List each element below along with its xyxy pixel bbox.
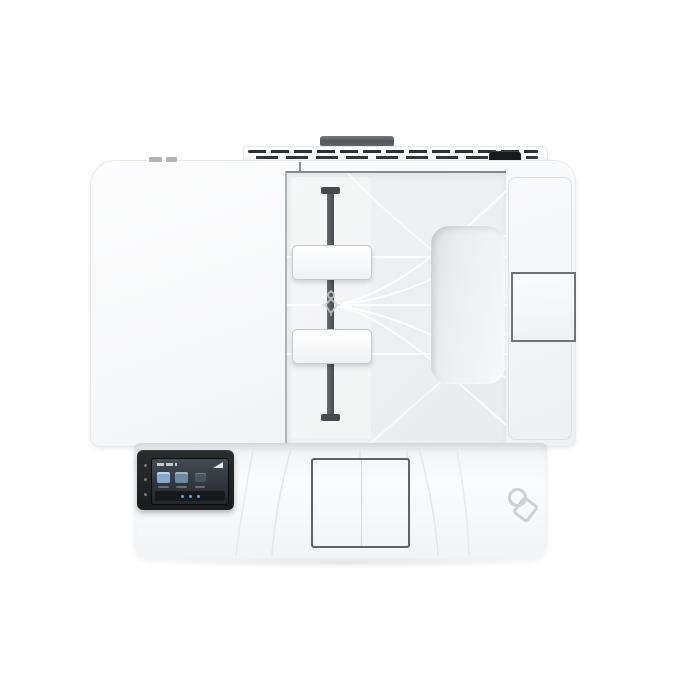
app-icon-caption: [176, 486, 187, 488]
guide-rail-end-cap: [321, 414, 340, 421]
screen-nav-bar: [155, 491, 225, 501]
control-panel: [137, 450, 234, 510]
app-icon-caption: [158, 486, 169, 488]
screen-status-corner-icon: [213, 462, 223, 468]
panel-indicator-2: [144, 478, 147, 481]
output-extension-seam: [511, 272, 576, 342]
nav-dot: [181, 495, 184, 498]
app-icon-caption: [195, 486, 205, 488]
app-icon-2: [175, 472, 188, 483]
panel-indicator-1: [144, 464, 147, 467]
guide-rail-end-cap: [321, 187, 340, 194]
paper-width-guide-top: [292, 245, 372, 280]
nfc-tap-icon: [505, 488, 541, 524]
screen-status-bar: [157, 463, 177, 466]
adf-lift-handle-recess: [431, 226, 505, 384]
app-icon-3: [195, 473, 206, 482]
lid-hinge-tab: [166, 157, 177, 162]
nav-dot: [197, 495, 200, 498]
drop-shadow: [150, 557, 540, 569]
paper-width-guide-bottom: [292, 329, 372, 364]
front-access-door-seam: [311, 458, 410, 548]
product-photo-printer-top-view: [0, 0, 700, 700]
paper-guide-adjust-icon: [321, 289, 341, 317]
nav-dot: [189, 495, 192, 498]
panel-indicator-3: [144, 493, 147, 496]
lid-hinge-tab: [149, 157, 162, 162]
app-icon-1: [157, 472, 170, 483]
touchscreen-display: [151, 458, 229, 505]
front-door-center-seam: [361, 460, 362, 546]
